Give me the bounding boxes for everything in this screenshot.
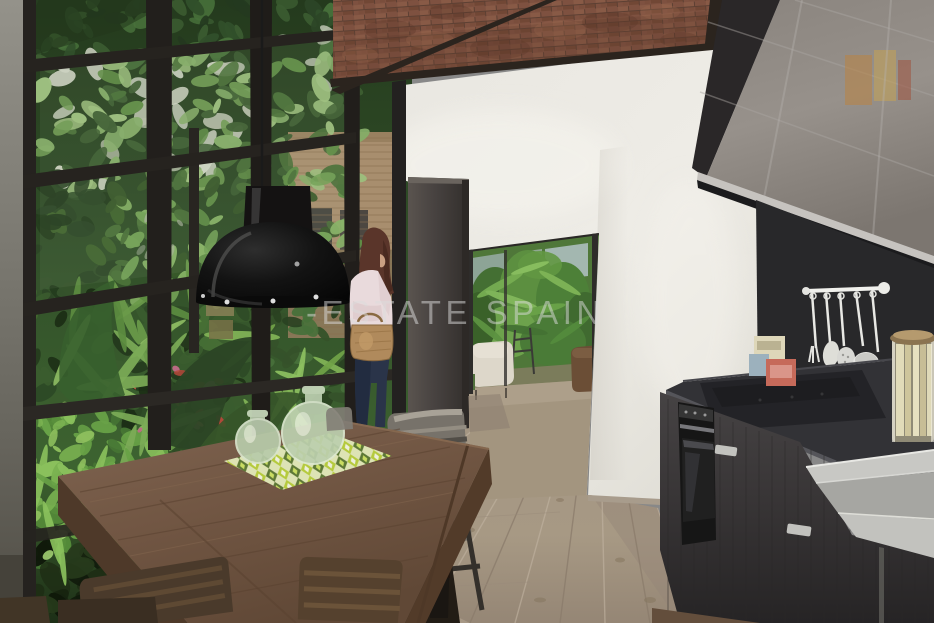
svg-text:-ESTATE SPAIN: -ESTATE SPAIN bbox=[306, 294, 605, 331]
